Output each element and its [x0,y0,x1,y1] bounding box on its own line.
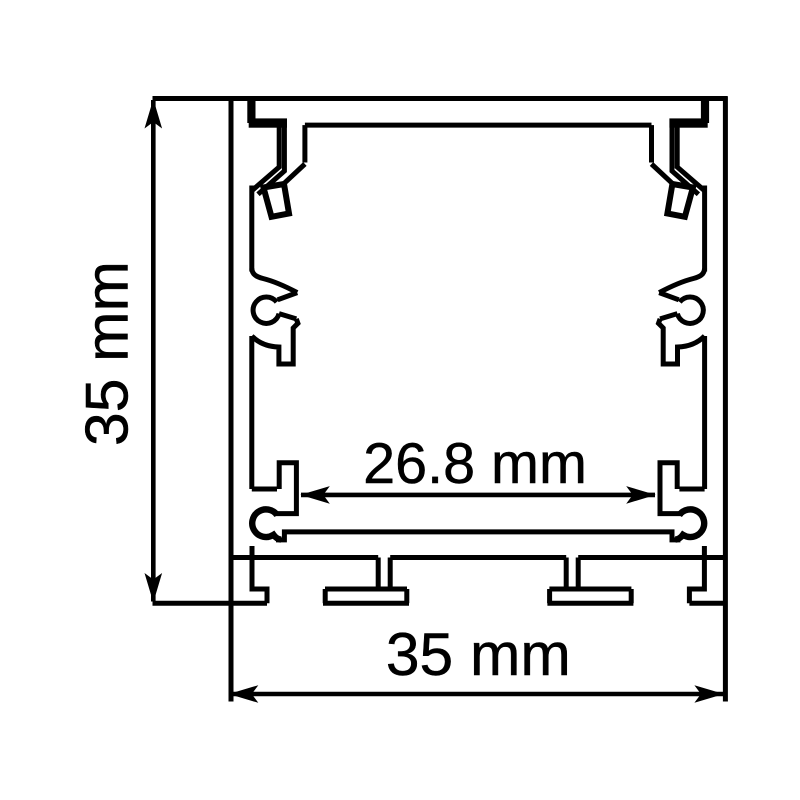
svg-text:35 mm: 35 mm [386,620,571,688]
svg-text:35 mm: 35 mm [72,261,140,446]
svg-text:26.8 mm: 26.8 mm [363,432,587,496]
